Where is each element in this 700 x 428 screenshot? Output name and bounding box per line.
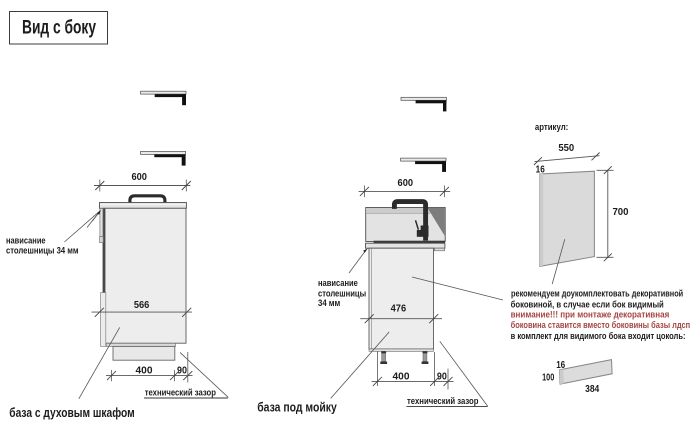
svg-text:артикул:: артикул: — [535, 122, 568, 133]
svg-text:столешницы 34 мм: столешницы 34 мм — [6, 246, 79, 257]
svg-text:технический зазор: технический зазор — [407, 396, 479, 407]
svg-text:Вид с боку: Вид с боку — [22, 18, 96, 39]
svg-text:нависание: нависание — [318, 278, 358, 289]
svg-text:внимание!!! при монтаже декора: внимание!!! при монтаже декоративная — [511, 310, 670, 321]
svg-text:384: 384 — [585, 383, 599, 395]
svg-text:база с духовым шкафом: база с духовым шкафом — [9, 406, 134, 420]
svg-text:700: 700 — [612, 206, 628, 218]
svg-text:100: 100 — [542, 372, 554, 384]
svg-text:476: 476 — [391, 302, 407, 314]
svg-text:34 мм: 34 мм — [318, 298, 340, 309]
svg-text:боковина ставится вместо боков: боковина ставится вместо боковины базы л… — [511, 320, 691, 331]
svg-text:90: 90 — [437, 371, 447, 383]
svg-text:90: 90 — [177, 365, 187, 377]
svg-text:400: 400 — [393, 371, 410, 383]
svg-text:в комплект для видимого бока в: в комплект для видимого бока входит цоко… — [511, 331, 686, 342]
svg-text:600: 600 — [398, 177, 414, 189]
svg-text:16: 16 — [556, 359, 565, 371]
svg-text:технический зазор: технический зазор — [145, 387, 216, 398]
svg-text:600: 600 — [131, 171, 147, 183]
svg-text:566: 566 — [134, 299, 150, 311]
svg-text:база под мойку: база под мойку — [257, 400, 337, 414]
svg-text:400: 400 — [136, 365, 153, 377]
svg-text:рекомендуем доукомплектовать д: рекомендуем доукомплектовать декоративно… — [511, 289, 683, 300]
svg-text:550: 550 — [558, 142, 574, 154]
